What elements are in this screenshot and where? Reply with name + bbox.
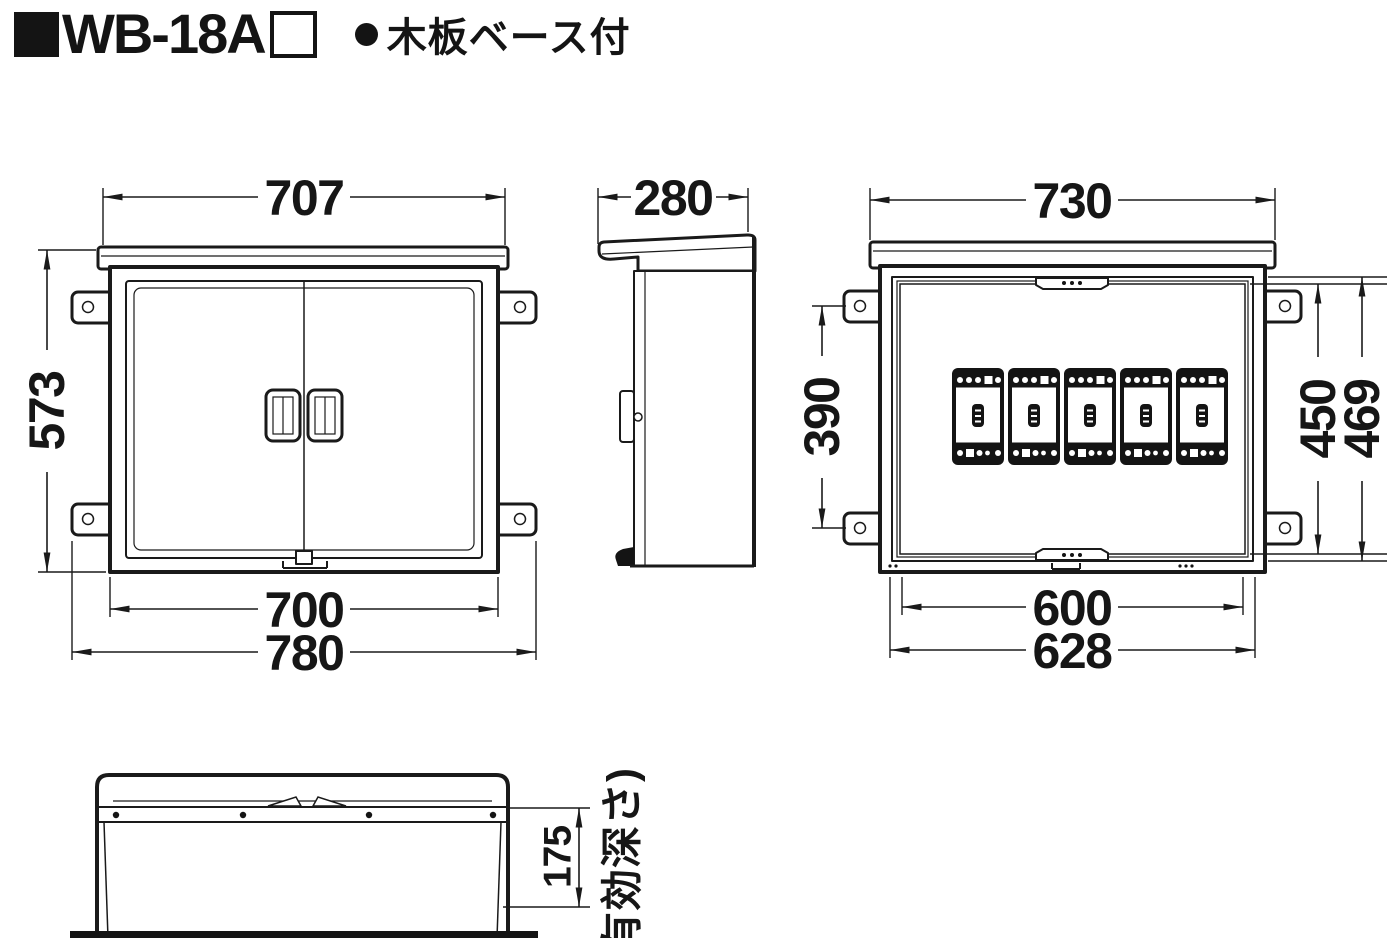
section-body	[97, 775, 508, 938]
screw-dot	[366, 812, 372, 818]
front-overall-width-value: 780	[265, 625, 344, 681]
ear-hole	[515, 514, 526, 525]
side-body	[634, 271, 754, 566]
breaker	[952, 368, 1004, 465]
bottom-latch	[296, 551, 312, 564]
ear-hole	[855, 523, 866, 534]
base-view	[844, 242, 1301, 572]
breaker	[1008, 368, 1060, 465]
door-handle-right	[308, 390, 342, 441]
effective-depth-value: 175	[537, 826, 580, 888]
wall-line	[70, 931, 538, 938]
ear-hole	[515, 302, 526, 313]
screw-dot	[113, 812, 119, 818]
breaker	[1120, 368, 1172, 465]
frame-height-value: 469	[1334, 380, 1387, 459]
side-dimensions: 280	[598, 170, 748, 244]
front-top-width-value: 707	[265, 170, 344, 226]
front-view	[72, 247, 536, 572]
bottom-section-view: 175 (有効深さ)	[70, 767, 646, 938]
side-view	[599, 235, 755, 567]
ear-hole	[83, 302, 94, 313]
screw-dot	[240, 812, 246, 818]
screw-dot	[490, 812, 496, 818]
base-top-width-value: 730	[1033, 173, 1112, 229]
ear-hole	[1280, 523, 1291, 534]
breaker	[1176, 368, 1228, 465]
frame-width-value: 628	[1033, 623, 1113, 679]
technical-drawing: 707 573 700 780	[0, 0, 1387, 938]
door-handle-left	[266, 390, 300, 441]
breaker	[1064, 368, 1116, 465]
side-lock-hole	[634, 413, 642, 421]
side-foot	[615, 547, 634, 566]
effective-depth-label: (有効深さ)	[599, 767, 646, 938]
ear-hole	[83, 514, 94, 525]
ear-hole	[855, 301, 866, 312]
mount-pitch-value: 390	[794, 378, 850, 457]
side-hinge	[620, 391, 634, 442]
front-height-value: 573	[19, 372, 75, 451]
catalog-drawing-page: WB-18A 木板ベース付	[0, 0, 1387, 938]
side-depth-value: 280	[634, 170, 713, 226]
ear-hole	[1280, 301, 1291, 312]
